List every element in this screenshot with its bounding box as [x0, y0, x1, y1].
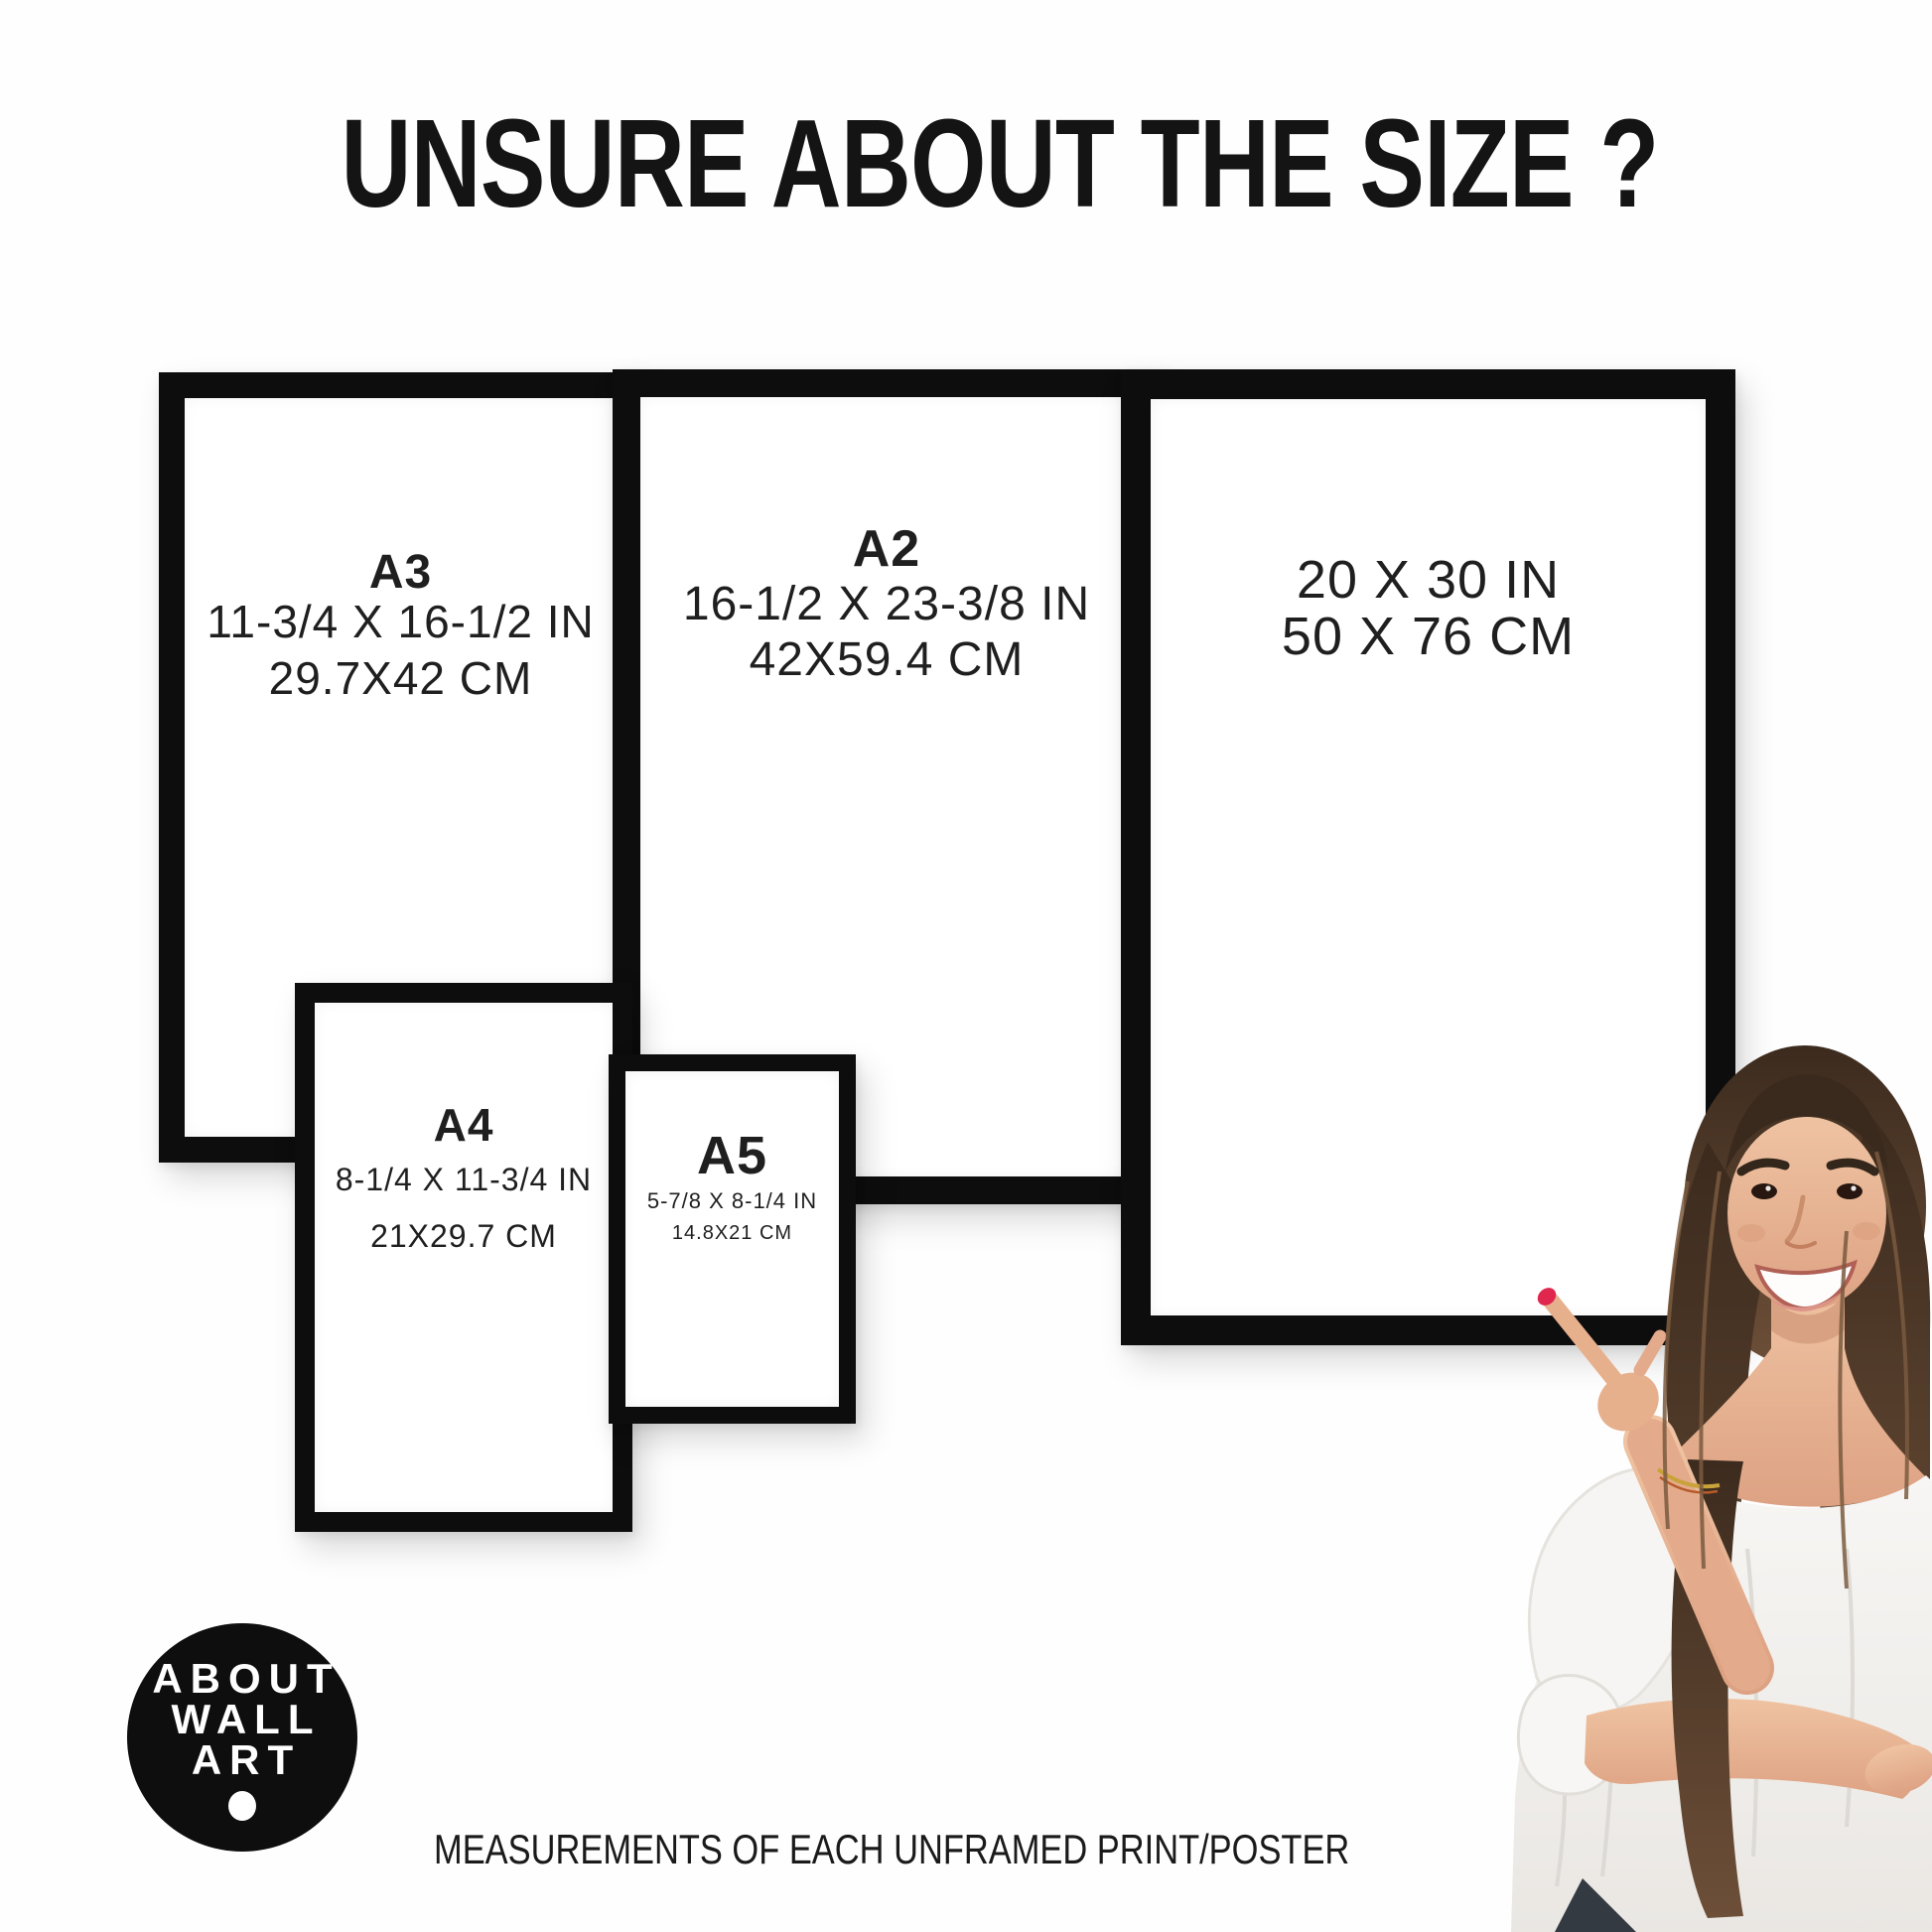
frame-a3-label: A3 [369, 549, 432, 597]
brand-logo-line2: WALL [164, 1699, 322, 1739]
frame-a4-size-cm: 21X29.7 CM [370, 1220, 557, 1252]
frame-a5-label: A5 [697, 1129, 767, 1182]
brand-logo-dot [228, 1791, 256, 1821]
frame-a5-size-inches: 5-7/8 X 8-1/4 IN [647, 1190, 817, 1212]
frame-a5: A5 5-7/8 X 8-1/4 IN 14.8X21 CM [609, 1054, 856, 1424]
frame-a3-size-cm: 29.7X42 CM [269, 655, 533, 701]
frame-a5-size-cm: 14.8X21 CM [672, 1223, 792, 1243]
brand-logo-line1: ABOUT [144, 1658, 340, 1699]
frame-a4: A4 8-1/4 X 11-3/4 IN 21X29.7 CM [295, 983, 632, 1532]
frame-a3-size-inches: 11-3/4 X 16-1/2 IN [207, 599, 594, 644]
frame-a2-size-cm: 42X59.4 CM [750, 636, 1025, 684]
frame-a2-label: A2 [853, 523, 920, 575]
page-title: UNSURE ABOUT THE SIZE ? [341, 101, 1658, 226]
right-eye [1837, 1183, 1863, 1199]
brand-logo-line3: ART [184, 1739, 301, 1780]
frame-20x30-size-inches: 20 X 30 IN [1297, 553, 1560, 607]
woman-photo [1191, 1033, 1932, 1932]
left-eye [1751, 1183, 1777, 1199]
thumb [1640, 1336, 1660, 1370]
face [1725, 1074, 1888, 1311]
frame-20x30-size-cm: 50 X 76 CM [1282, 610, 1575, 663]
frame-a4-label: A4 [434, 1102, 494, 1148]
brand-logo: ABOUT WALL ART [127, 1623, 357, 1852]
frame-a2-size-inches: 16-1/2 X 23-3/8 IN [683, 581, 1090, 628]
index-finger [1551, 1301, 1616, 1382]
frame-a4-size-inches: 8-1/4 X 11-3/4 IN [336, 1164, 592, 1195]
